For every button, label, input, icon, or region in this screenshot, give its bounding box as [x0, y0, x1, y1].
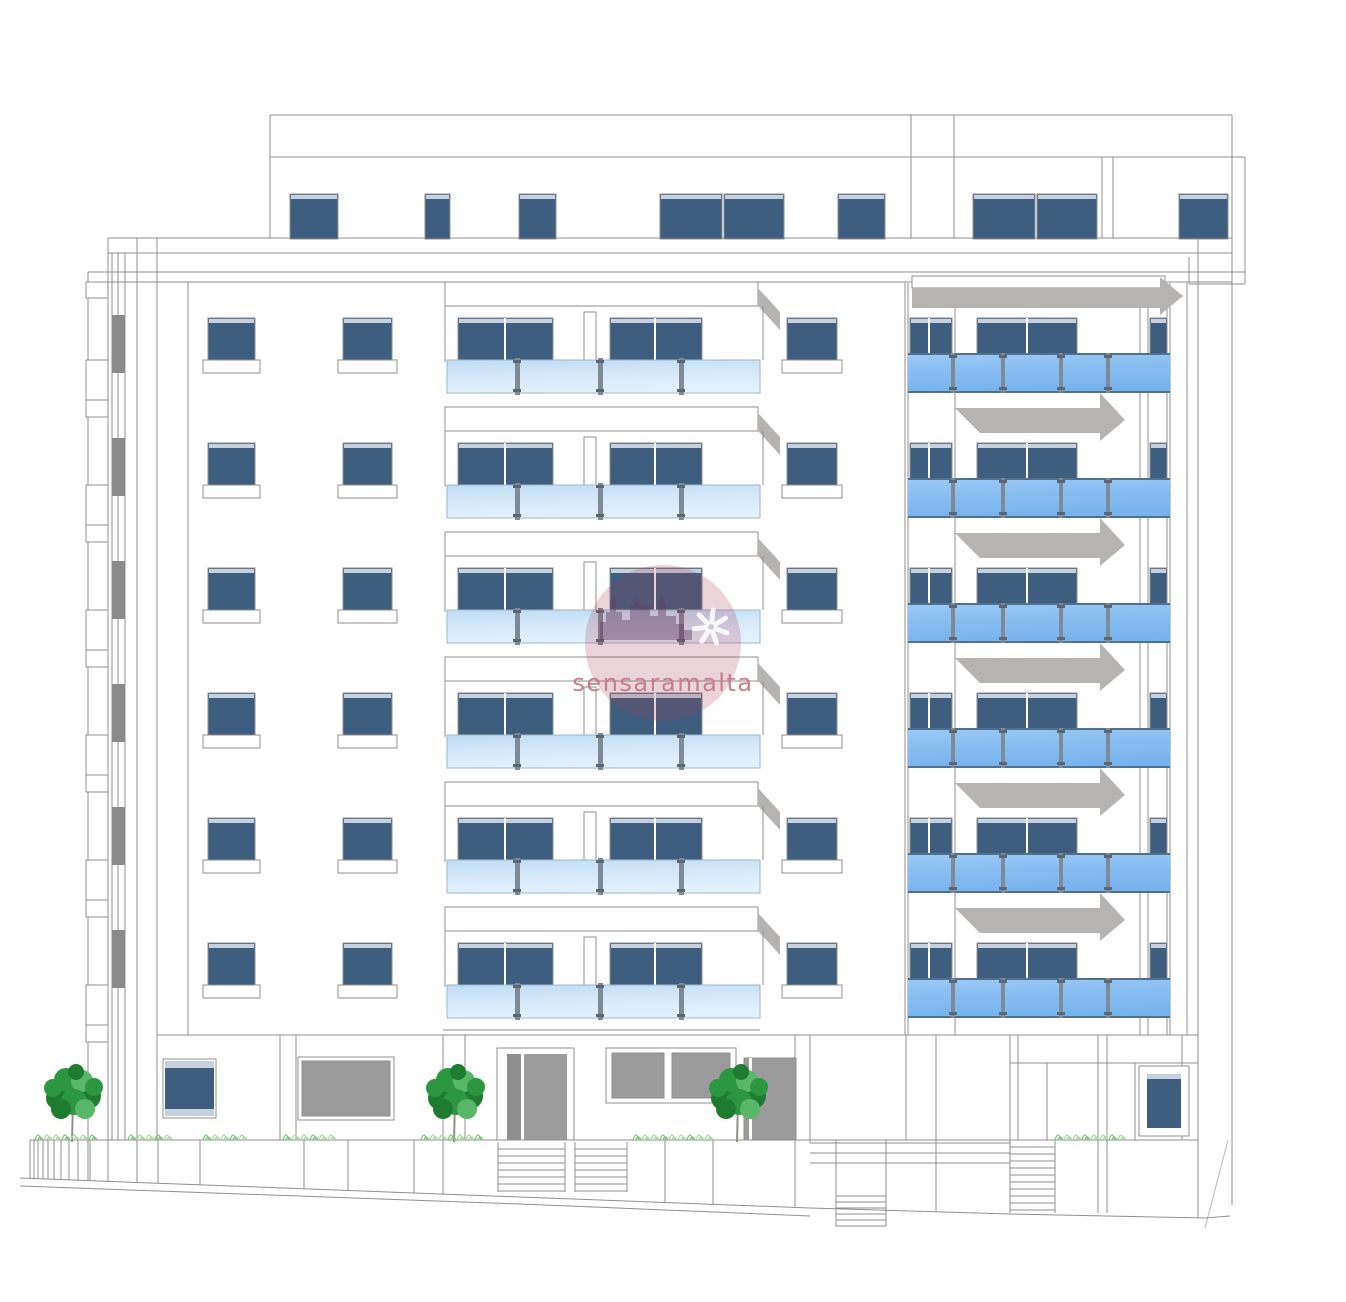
- balustrade-rail: [908, 891, 1170, 893]
- shrub: [319, 1135, 327, 1140]
- shrub: [128, 1135, 136, 1140]
- post-clamp: [513, 985, 521, 988]
- window-top-edge: [788, 319, 836, 323]
- post-clamp: [949, 637, 957, 640]
- post-clamp: [949, 605, 957, 608]
- penthouse-window: [838, 194, 885, 239]
- post-clamp: [1057, 887, 1065, 890]
- shrub-cluster: [283, 1135, 336, 1140]
- balustrade-rail: [908, 478, 1170, 480]
- shrub: [239, 1135, 247, 1140]
- post-clamp: [596, 389, 604, 392]
- window-top-edge: [788, 444, 836, 448]
- window-top-edge: [209, 569, 254, 573]
- glass-balustrade-bright: [908, 353, 1170, 393]
- tree-foliage: [750, 1078, 768, 1096]
- facade-window: [208, 568, 255, 610]
- tree-foliage: [709, 1079, 727, 1097]
- penthouse-window: [425, 194, 450, 239]
- window-top-edge: [344, 819, 391, 823]
- window-top-edge: [1038, 195, 1096, 199]
- facade-window: [787, 818, 837, 860]
- post-clamp: [999, 637, 1007, 640]
- site-works: [20, 1140, 1230, 1226]
- post-clamp: [677, 764, 685, 767]
- architectural-elevation-sheet: sensaramalta: [0, 0, 1346, 1302]
- window-sill: [338, 860, 397, 873]
- window-pane-divider: [654, 818, 656, 860]
- balcony-pilaster: [584, 312, 596, 360]
- penthouse-window: [973, 194, 1035, 239]
- facade-window: [208, 443, 255, 485]
- shrub: [301, 1135, 309, 1140]
- shrub-cluster: [1055, 1135, 1126, 1140]
- street-kerb-line: [20, 1186, 810, 1216]
- facade-window: [343, 318, 392, 360]
- shrub: [430, 1135, 438, 1140]
- shrub: [696, 1135, 704, 1140]
- post-clamp: [513, 860, 521, 863]
- post-clamp: [949, 387, 957, 390]
- balcony-pilaster: [584, 437, 596, 485]
- window-top-edge: [344, 444, 391, 448]
- post-clamp: [677, 860, 685, 863]
- window-pane-divider: [654, 443, 656, 485]
- post-clamp: [949, 1012, 957, 1015]
- window-top-edge: [344, 944, 391, 948]
- shrub: [80, 1135, 88, 1140]
- window-top-edge: [911, 819, 951, 823]
- balcony-slab: [445, 907, 758, 931]
- post-clamp: [1104, 887, 1112, 890]
- balustrade-rail: [908, 728, 1170, 730]
- angled-canopy: [955, 643, 1125, 691]
- facade-window: [208, 693, 255, 735]
- frame-band: [165, 1109, 214, 1116]
- post-clamp: [1057, 855, 1065, 858]
- window-top-edge: [344, 569, 391, 573]
- side-ledge: [86, 610, 108, 667]
- post-clamp: [999, 512, 1007, 515]
- penthouse-window: [1179, 194, 1228, 239]
- facade-window: [787, 943, 837, 985]
- shrub: [53, 1135, 61, 1140]
- shrub: [283, 1135, 291, 1140]
- elevation-drawing: sensaramalta: [0, 0, 1346, 1302]
- shrub: [660, 1135, 668, 1140]
- post-clamp: [513, 764, 521, 767]
- window-sill: [782, 485, 842, 498]
- window-sill: [782, 610, 842, 623]
- window-pane-divider: [654, 943, 656, 985]
- pipe-segment: [112, 807, 125, 865]
- window-top-edge: [725, 195, 783, 199]
- facade-window: [343, 943, 392, 985]
- post-clamp: [1057, 980, 1065, 983]
- tree-foliage: [68, 1064, 84, 1080]
- ground-window: [165, 1068, 214, 1109]
- watermark-text: sensaramalta: [572, 669, 753, 697]
- post-clamp: [1057, 605, 1065, 608]
- shrub: [164, 1135, 172, 1140]
- window-top-edge: [788, 569, 836, 573]
- post-clamp: [999, 605, 1007, 608]
- window-sill: [338, 735, 397, 748]
- tree: [44, 1064, 103, 1142]
- shrub: [475, 1135, 483, 1140]
- post-clamp: [513, 514, 521, 517]
- tree-foliage: [740, 1099, 760, 1119]
- tree-foliage: [75, 1099, 95, 1119]
- balustrade-rail: [908, 978, 1170, 980]
- penthouse-window: [724, 194, 784, 239]
- post-clamp: [677, 360, 685, 363]
- post-clamp: [949, 512, 957, 515]
- post-clamp: [949, 730, 957, 733]
- post-clamp: [513, 639, 521, 642]
- window-sill: [203, 985, 260, 998]
- post-clamp: [1104, 512, 1112, 515]
- post-clamp: [949, 855, 957, 858]
- tree-foliage: [457, 1099, 477, 1119]
- side-ledge: [86, 985, 108, 1042]
- glass-balustrade-bright: [908, 853, 1170, 893]
- balcony-slab: [445, 282, 758, 306]
- post-clamp: [1057, 637, 1065, 640]
- facade-window: [343, 693, 392, 735]
- facade-window: [787, 568, 837, 610]
- post-clamp: [1104, 730, 1112, 733]
- angled-canopy: [955, 893, 1125, 941]
- shrub: [62, 1135, 70, 1140]
- post-clamp: [513, 360, 521, 363]
- slab-shadow: [758, 288, 780, 330]
- window-sill: [338, 985, 397, 998]
- tree-foliage: [85, 1078, 103, 1096]
- post-clamp: [1057, 355, 1065, 358]
- post-clamp: [1104, 387, 1112, 390]
- glass-balustrade: [447, 860, 760, 893]
- window-top-edge: [911, 944, 951, 948]
- facade-window: [787, 318, 837, 360]
- tree-foliage: [733, 1064, 749, 1080]
- window-top-edge: [1151, 569, 1166, 573]
- angled-canopy: [955, 518, 1125, 566]
- shrub: [669, 1135, 677, 1140]
- post-clamp: [596, 764, 604, 767]
- post-clamp: [513, 610, 521, 613]
- entrance-door-panel: [507, 1054, 521, 1140]
- post-clamp: [513, 485, 521, 488]
- pipe-segment: [112, 315, 125, 373]
- shrub: [687, 1135, 695, 1140]
- post-clamp: [949, 480, 957, 483]
- shrub: [230, 1135, 238, 1140]
- shrub: [203, 1135, 211, 1140]
- balustrade-rail: [908, 391, 1170, 393]
- tree-foliage: [426, 1079, 444, 1097]
- post-clamp: [1104, 855, 1112, 858]
- side-ledge: [86, 860, 108, 917]
- post-clamp: [513, 889, 521, 892]
- facade-window: [787, 443, 837, 485]
- post-clamp: [677, 389, 685, 392]
- penthouse-window: [660, 194, 722, 239]
- window-pane-divider: [504, 318, 506, 360]
- pipe-segment: [112, 561, 125, 619]
- shrub: [642, 1135, 650, 1140]
- window-top-edge: [1151, 319, 1166, 323]
- ground-floor: [163, 1035, 1198, 1143]
- tree-foliage: [450, 1064, 466, 1080]
- shrub: [1055, 1135, 1063, 1140]
- window-top-edge: [1151, 819, 1166, 823]
- window-top-edge: [788, 819, 836, 823]
- post-clamp: [999, 730, 1007, 733]
- post-clamp: [999, 1012, 1007, 1015]
- balustrade-rail: [908, 603, 1170, 605]
- glass-balustrade-bright: [908, 978, 1170, 1018]
- post-clamp: [949, 762, 957, 765]
- post-clamp: [1104, 355, 1112, 358]
- glass-balustrade: [447, 485, 760, 518]
- tree-foliage: [716, 1099, 736, 1119]
- faint-edge: [1205, 1140, 1228, 1228]
- facade-window: [208, 818, 255, 860]
- shrub: [1118, 1135, 1126, 1140]
- shrub-cluster: [203, 1135, 247, 1140]
- post-clamp: [1104, 980, 1112, 983]
- window-top-edge: [974, 195, 1034, 199]
- left-side-strip: [86, 238, 188, 1181]
- shrub: [212, 1135, 220, 1140]
- slab-shadow: [758, 413, 780, 455]
- window-pane-divider: [654, 318, 656, 360]
- window-pane-divider: [504, 443, 506, 485]
- penthouse-window: [1037, 194, 1097, 239]
- shrub: [89, 1135, 97, 1140]
- post-clamp: [949, 887, 957, 890]
- window-top-edge: [209, 444, 254, 448]
- frame-band: [1147, 1074, 1181, 1079]
- post-clamp: [596, 360, 604, 363]
- window-sill: [203, 735, 260, 748]
- balustrade-rail: [908, 641, 1170, 643]
- shrub: [328, 1135, 336, 1140]
- window-pane-divider: [504, 693, 506, 735]
- post-clamp: [1057, 512, 1065, 515]
- window-sill: [782, 735, 842, 748]
- window-sill: [338, 485, 397, 498]
- window-pane-divider: [504, 943, 506, 985]
- glass-balustrade-bright: [908, 603, 1170, 643]
- shrub: [310, 1135, 318, 1140]
- post-clamp: [596, 485, 604, 488]
- window-sill: [203, 485, 260, 498]
- glass-balustrade: [447, 360, 760, 393]
- window-top-edge: [788, 694, 836, 698]
- shrub: [137, 1135, 145, 1140]
- post-clamp: [949, 355, 957, 358]
- glass-balustrade-bright: [908, 478, 1170, 518]
- glass-balustrade-bright: [908, 728, 1170, 768]
- ground-gray-window: [612, 1053, 664, 1098]
- shrub: [651, 1135, 659, 1140]
- side-ledge: [86, 735, 108, 792]
- facade-window: [787, 693, 837, 735]
- window-top-edge: [209, 319, 254, 323]
- balcony-pilaster: [584, 562, 596, 610]
- post-clamp: [677, 514, 685, 517]
- window-sill: [782, 860, 842, 873]
- shrub: [633, 1135, 641, 1140]
- post-clamp: [1057, 762, 1065, 765]
- tree: [426, 1064, 485, 1142]
- post-clamp: [1057, 480, 1065, 483]
- window-sill: [782, 985, 842, 998]
- post-clamp: [677, 1014, 685, 1017]
- shrub: [1109, 1135, 1117, 1140]
- frame-band: [165, 1061, 214, 1068]
- post-clamp: [596, 514, 604, 517]
- slab-shadow: [758, 788, 780, 830]
- balustrade-rail: [908, 353, 1170, 355]
- window-top-edge: [911, 444, 951, 448]
- angled-canopy: [955, 393, 1125, 441]
- ground-window: [1147, 1074, 1181, 1128]
- window-top-edge: [291, 195, 337, 199]
- window-top-edge: [839, 195, 884, 199]
- post-clamp: [999, 855, 1007, 858]
- penthouse-window: [519, 194, 556, 239]
- window-top-edge: [426, 195, 449, 199]
- post-clamp: [999, 762, 1007, 765]
- post-clamp: [1057, 1012, 1065, 1015]
- glass-balustrade: [447, 985, 760, 1018]
- shrub: [155, 1135, 163, 1140]
- glass-balustrade: [447, 735, 760, 768]
- window-top-edge: [788, 944, 836, 948]
- shrub: [1082, 1135, 1090, 1140]
- window-sill: [203, 610, 260, 623]
- angled-canopy: [955, 768, 1125, 816]
- window-top-edge: [911, 319, 951, 323]
- facade-window: [343, 443, 392, 485]
- post-clamp: [999, 355, 1007, 358]
- window-sill: [338, 610, 397, 623]
- post-clamp: [949, 980, 957, 983]
- post-clamp: [596, 1014, 604, 1017]
- facade-window: [343, 818, 392, 860]
- window-sill: [338, 360, 397, 373]
- window-sill: [203, 360, 260, 373]
- canopy-slab: [912, 276, 1165, 288]
- balcony-slab: [445, 407, 758, 431]
- shrub: [146, 1135, 154, 1140]
- post-clamp: [999, 980, 1007, 983]
- side-ledge: [86, 485, 108, 542]
- shrub: [705, 1135, 713, 1140]
- tree-foliage: [44, 1079, 62, 1097]
- garage-panel: [302, 1061, 390, 1116]
- post-clamp: [1104, 637, 1112, 640]
- window-top-edge: [520, 195, 555, 199]
- post-clamp: [513, 735, 521, 738]
- facade-window: [208, 318, 255, 360]
- post-clamp: [513, 1014, 521, 1017]
- post-clamp: [999, 887, 1007, 890]
- shrub: [457, 1135, 465, 1140]
- facade-window: [208, 943, 255, 985]
- shrub-cluster: [633, 1135, 713, 1140]
- post-clamp: [677, 735, 685, 738]
- balcony-slab: [445, 782, 758, 806]
- post-clamp: [1104, 480, 1112, 483]
- pipe-segment: [112, 930, 125, 988]
- post-clamp: [596, 860, 604, 863]
- window-pane-divider: [504, 568, 506, 610]
- post-clamp: [596, 985, 604, 988]
- window-sill: [782, 360, 842, 373]
- post-clamp: [1104, 762, 1112, 765]
- shrub-cluster: [421, 1135, 483, 1140]
- window-top-edge: [209, 819, 254, 823]
- shrub: [1064, 1135, 1072, 1140]
- window-top-edge: [911, 694, 951, 698]
- penthouse-window: [290, 194, 338, 239]
- star-blade: [712, 610, 714, 622]
- entrance-door-panel: [524, 1054, 567, 1140]
- shrub: [35, 1135, 43, 1140]
- post-clamp: [677, 889, 685, 892]
- slab-shadow: [758, 913, 780, 955]
- post-clamp: [1104, 1012, 1112, 1015]
- window-top-edge: [209, 944, 254, 948]
- post-clamp: [513, 389, 521, 392]
- post-clamp: [999, 387, 1007, 390]
- window-top-edge: [344, 694, 391, 698]
- pipe-segment: [112, 438, 125, 496]
- window-top-edge: [1180, 195, 1227, 199]
- post-clamp: [1057, 730, 1065, 733]
- tree-foliage: [51, 1099, 71, 1119]
- watermark: sensaramalta: [572, 565, 753, 721]
- balustrade-rail: [908, 766, 1170, 768]
- pipe-segment: [112, 684, 125, 742]
- balustrade-rail: [908, 516, 1170, 518]
- window-top-edge: [661, 195, 721, 199]
- window-top-edge: [209, 694, 254, 698]
- post-clamp: [999, 480, 1007, 483]
- window-top-edge: [911, 569, 951, 573]
- balcony-slab: [445, 532, 758, 556]
- tree-foliage: [467, 1078, 485, 1096]
- window-top-edge: [344, 319, 391, 323]
- lower-steps: [836, 1196, 886, 1226]
- star-blade: [694, 627, 706, 628]
- shrub: [221, 1135, 229, 1140]
- balcony-pilaster: [584, 937, 596, 985]
- slab-shadow: [758, 663, 780, 705]
- post-clamp: [596, 735, 604, 738]
- window-top-edge: [1151, 944, 1166, 948]
- tree-foliage: [433, 1099, 453, 1119]
- post-clamp: [677, 985, 685, 988]
- window-pane-divider: [504, 818, 506, 860]
- balustrade-rail: [908, 1016, 1170, 1018]
- shrub-cluster: [128, 1135, 172, 1140]
- shrub: [44, 1135, 52, 1140]
